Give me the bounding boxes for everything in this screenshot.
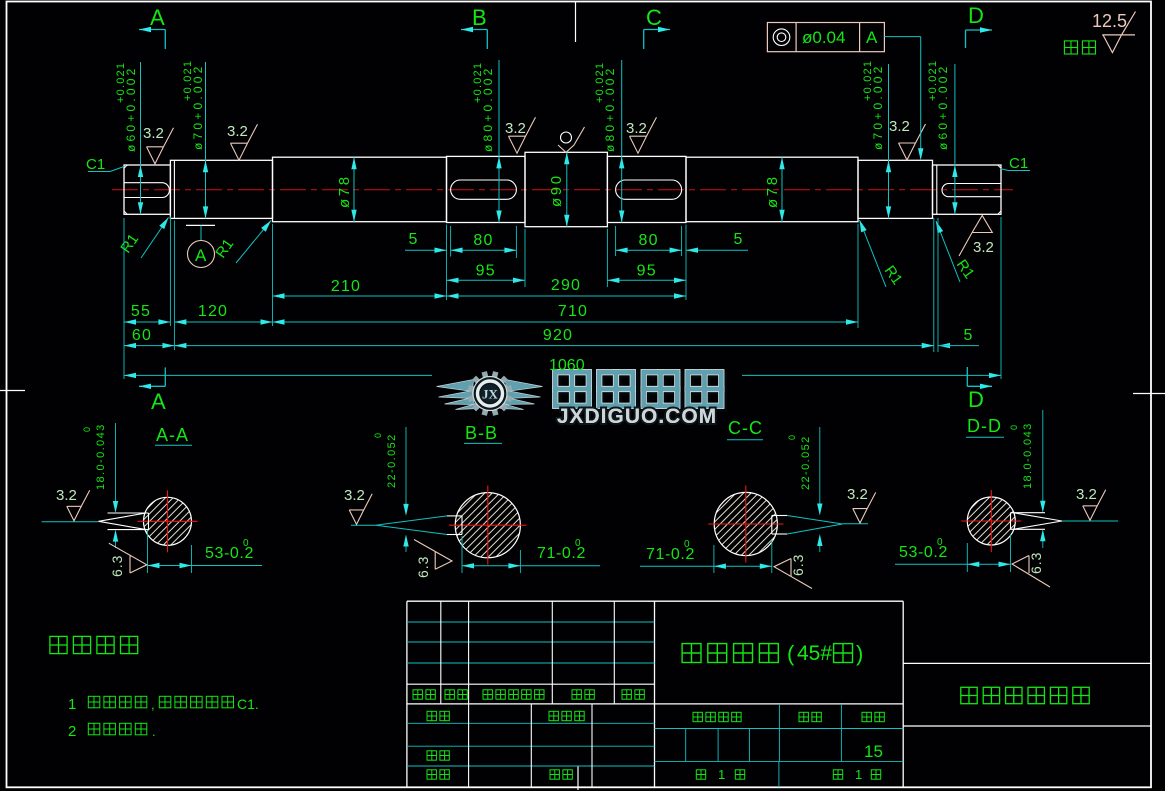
svg-text:3.2: 3.2 xyxy=(973,239,994,256)
svg-text:5: 5 xyxy=(734,231,743,248)
svg-text:C1: C1 xyxy=(1009,155,1028,172)
svg-text:3.2: 3.2 xyxy=(889,118,910,135)
svg-text:80: 80 xyxy=(473,232,493,249)
svg-text:A: A xyxy=(866,28,878,47)
svg-text:D: D xyxy=(968,3,984,28)
svg-text:0: 0 xyxy=(684,539,690,550)
svg-text:ø78: ø78 xyxy=(336,174,353,208)
svg-text:A: A xyxy=(150,5,165,30)
svg-text:210: 210 xyxy=(331,278,361,295)
svg-text:B-B: B-B xyxy=(465,423,498,443)
svg-text:95: 95 xyxy=(476,262,496,279)
svg-text:3.2: 3.2 xyxy=(344,487,365,504)
svg-text:5: 5 xyxy=(409,231,418,248)
svg-text:+0.021: +0.021 xyxy=(182,60,194,101)
svg-text:JXDIGUO.COM: JXDIGUO.COM xyxy=(557,405,717,428)
svg-text:12.5: 12.5 xyxy=(1092,11,1127,31)
svg-text:3.2: 3.2 xyxy=(505,120,526,137)
svg-text:,: , xyxy=(151,697,155,712)
svg-text:1060: 1060 xyxy=(549,357,585,374)
svg-text:(: ( xyxy=(787,641,795,666)
svg-text:15: 15 xyxy=(864,742,883,761)
svg-text:0: 0 xyxy=(787,435,797,440)
svg-text:60: 60 xyxy=(132,327,152,344)
svg-text:3.2: 3.2 xyxy=(1076,486,1097,503)
svg-text:80: 80 xyxy=(638,232,658,249)
svg-text:0: 0 xyxy=(575,538,581,549)
svg-text:+0.021: +0.021 xyxy=(472,62,484,103)
svg-text:C1.: C1. xyxy=(237,696,259,712)
svg-text:+0.021: +0.021 xyxy=(594,62,606,103)
svg-text:+0.021: +0.021 xyxy=(862,60,874,101)
svg-text:0: 0 xyxy=(1009,425,1019,430)
svg-text:.: . xyxy=(152,724,156,739)
svg-text:920: 920 xyxy=(543,327,573,344)
svg-text:1: 1 xyxy=(68,696,76,713)
svg-text:0: 0 xyxy=(373,433,383,438)
svg-text:18.0-0.043: 18.0-0.043 xyxy=(1022,422,1034,489)
svg-text:2: 2 xyxy=(68,723,76,740)
svg-text:C-C: C-C xyxy=(728,418,763,438)
svg-text:710: 710 xyxy=(558,303,588,320)
svg-text:ø0.04: ø0.04 xyxy=(802,28,845,47)
svg-text:A: A xyxy=(151,389,166,414)
svg-text:120: 120 xyxy=(198,303,228,320)
svg-text:): ) xyxy=(856,641,863,666)
svg-text:C: C xyxy=(646,5,662,30)
svg-text:ø90: ø90 xyxy=(548,173,565,207)
svg-text:6.3: 6.3 xyxy=(790,554,806,576)
svg-text:0: 0 xyxy=(243,538,249,549)
svg-text:5: 5 xyxy=(964,327,973,344)
svg-text:+0.021: +0.021 xyxy=(115,62,127,103)
svg-text:D: D xyxy=(968,387,984,412)
svg-text:C1: C1 xyxy=(86,156,105,173)
svg-text:3.2: 3.2 xyxy=(847,486,868,503)
svg-text:D-D: D-D xyxy=(967,416,1002,436)
svg-text:+0.021: +0.021 xyxy=(927,60,939,101)
svg-text:6.3: 6.3 xyxy=(415,556,431,578)
svg-text:3.2: 3.2 xyxy=(56,487,77,504)
svg-text:0: 0 xyxy=(937,537,943,548)
svg-text:6.3: 6.3 xyxy=(109,555,125,577)
svg-text:B: B xyxy=(472,5,487,30)
svg-text:0: 0 xyxy=(82,427,92,432)
svg-text:6.3: 6.3 xyxy=(1028,552,1044,574)
svg-text:3.2: 3.2 xyxy=(626,120,647,137)
svg-text:1: 1 xyxy=(718,767,725,782)
svg-text:45#: 45# xyxy=(797,642,832,665)
svg-text:95: 95 xyxy=(637,262,657,279)
svg-text:A-A: A-A xyxy=(156,425,189,445)
svg-text:1: 1 xyxy=(855,767,862,782)
svg-text:55: 55 xyxy=(131,303,151,320)
svg-text:A: A xyxy=(195,246,207,265)
svg-text:18.0-0.043: 18.0-0.043 xyxy=(95,423,107,490)
svg-text:ø78: ø78 xyxy=(764,174,781,208)
svg-text:3.2: 3.2 xyxy=(227,123,248,140)
svg-text:22-0.052: 22-0.052 xyxy=(386,433,398,488)
svg-text:3.2: 3.2 xyxy=(143,125,164,142)
svg-text:JX: JX xyxy=(482,387,499,402)
svg-text:290: 290 xyxy=(551,277,581,294)
svg-text:22-0.052: 22-0.052 xyxy=(800,435,812,490)
